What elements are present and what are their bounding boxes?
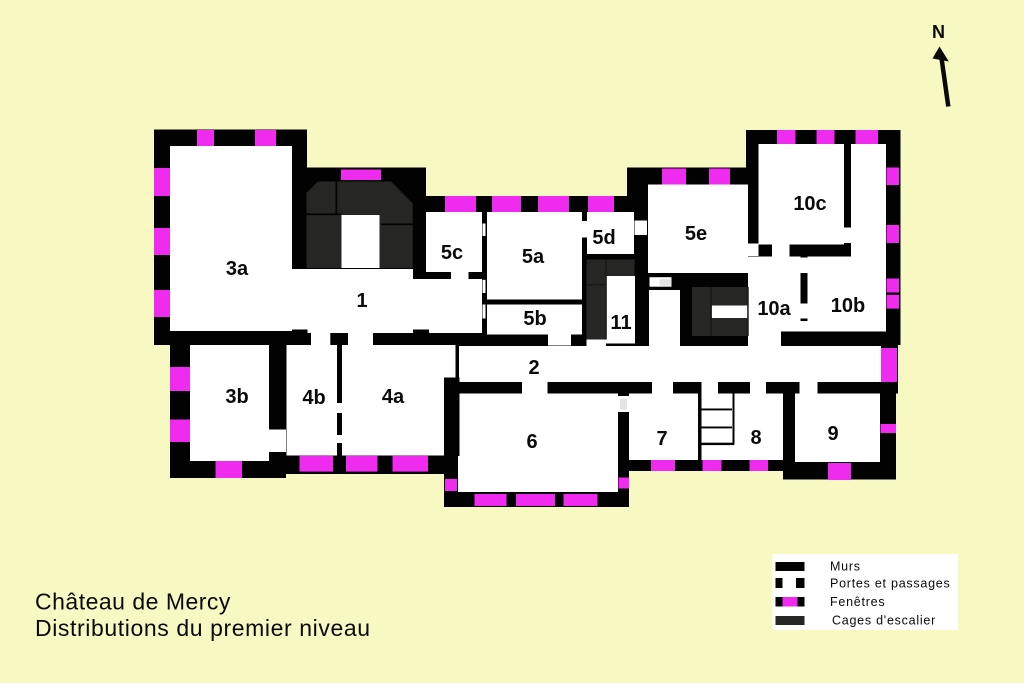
svg-text:4b: 4b bbox=[302, 387, 325, 409]
svg-text:Château de Mercy: Château de Mercy bbox=[35, 589, 231, 615]
svg-text:3a: 3a bbox=[226, 258, 249, 280]
svg-text:5c: 5c bbox=[441, 242, 463, 264]
svg-text:10b: 10b bbox=[831, 295, 865, 317]
svg-text:N: N bbox=[932, 22, 945, 42]
svg-text:4a: 4a bbox=[382, 386, 405, 408]
svg-text:6: 6 bbox=[526, 431, 537, 453]
svg-text:10c: 10c bbox=[793, 193, 826, 215]
svg-text:10a: 10a bbox=[757, 298, 791, 320]
svg-text:Cages d'escalier: Cages d'escalier bbox=[832, 614, 936, 628]
svg-text:Distributions du premier nivea: Distributions du premier niveau bbox=[35, 615, 371, 641]
svg-text:5e: 5e bbox=[685, 223, 707, 245]
svg-text:8: 8 bbox=[750, 427, 761, 449]
svg-text:Portes et passages: Portes et passages bbox=[830, 577, 951, 591]
svg-text:Fenêtres: Fenêtres bbox=[830, 595, 885, 609]
svg-text:1: 1 bbox=[356, 290, 367, 312]
svg-text:9: 9 bbox=[827, 423, 838, 445]
svg-text:5a: 5a bbox=[522, 246, 545, 268]
svg-text:Murs: Murs bbox=[830, 560, 861, 574]
svg-text:11: 11 bbox=[610, 312, 631, 334]
svg-text:5d: 5d bbox=[592, 227, 615, 249]
svg-text:3b: 3b bbox=[225, 386, 248, 408]
svg-text:5b: 5b bbox=[523, 308, 546, 330]
svg-text:2: 2 bbox=[528, 357, 539, 379]
svg-text:7: 7 bbox=[656, 428, 667, 450]
